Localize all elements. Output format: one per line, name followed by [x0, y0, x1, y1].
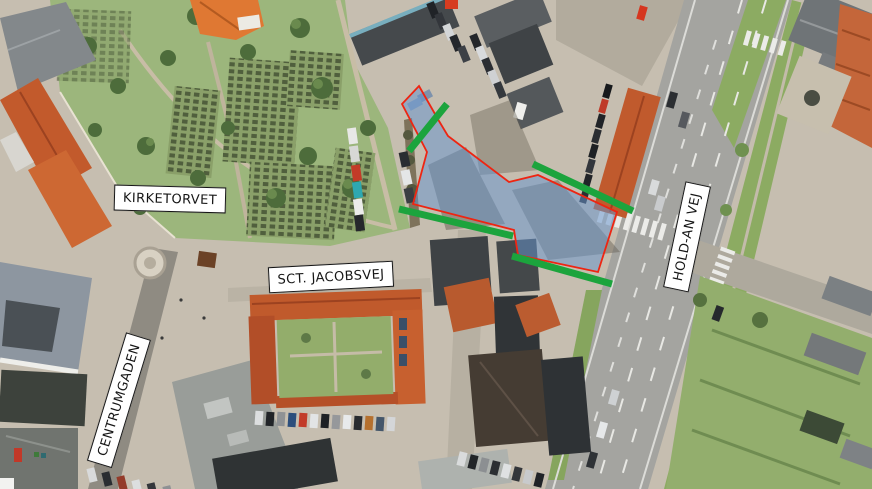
highlight-area-polygon [402, 86, 617, 272]
aerial-map: KIRKETORVET SCT. JACOBSVEJ CENTRUMGADEN … [0, 0, 872, 489]
label-kirketorvet: KIRKETORVET [114, 185, 227, 214]
annotation-overlay [0, 0, 872, 489]
